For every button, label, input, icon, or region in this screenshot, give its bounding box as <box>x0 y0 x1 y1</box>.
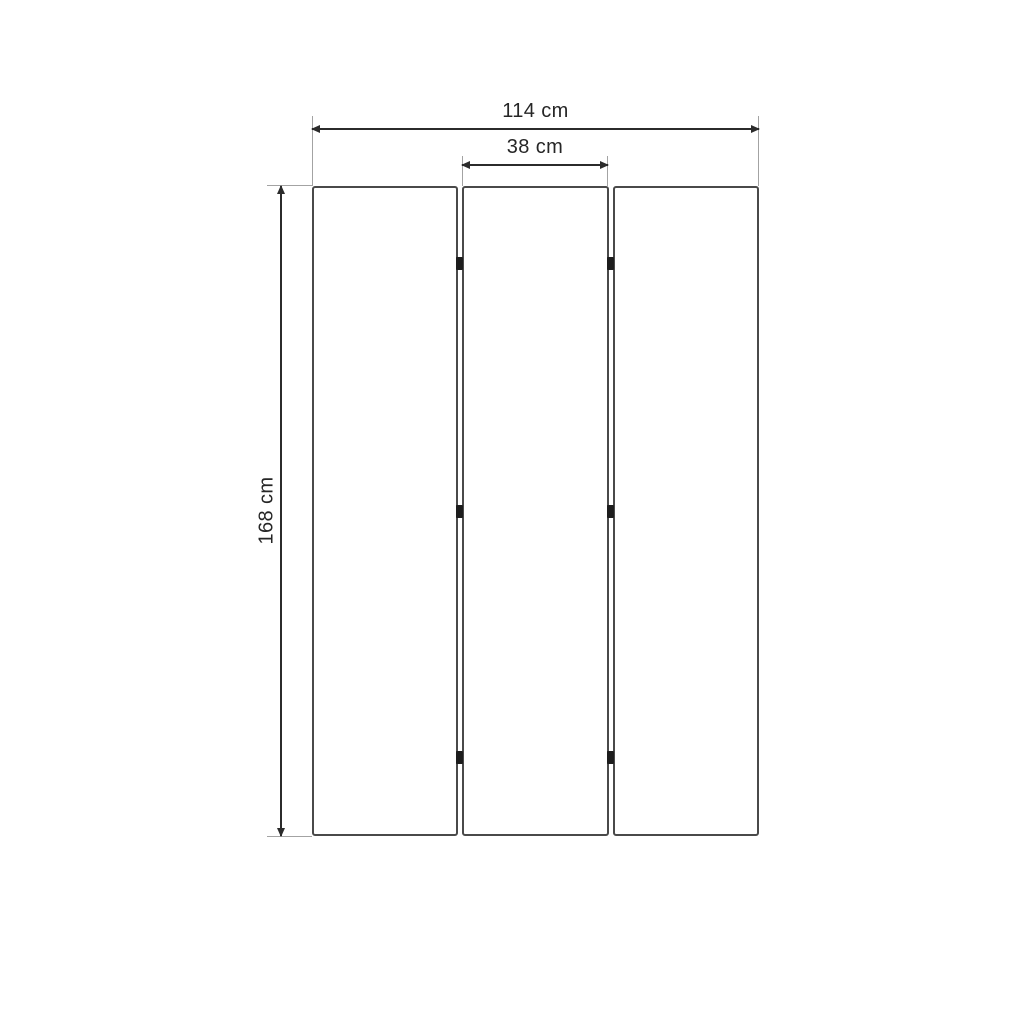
extension-line-height-top <box>267 185 312 186</box>
hinge-left-gap-middle <box>456 505 463 518</box>
hinge-left-gap-top <box>456 257 463 270</box>
extension-line-height-bottom <box>267 836 312 837</box>
panel-group <box>312 186 759 836</box>
panel-middle <box>462 186 608 836</box>
dimension-diagram: 114 cm 38 cm 168 cm <box>0 0 1024 1024</box>
panel-left <box>312 186 458 836</box>
height-dimension-label: 168 cm <box>256 451 279 571</box>
panel-width-dimension-line <box>462 164 608 166</box>
hinge-left-gap-bottom <box>456 751 463 764</box>
total-width-dimension-line <box>312 128 759 130</box>
panel-width-dimension-label: 38 cm <box>462 136 608 159</box>
total-width-dimension-label: 114 cm <box>312 100 759 123</box>
hinge-right-gap-middle <box>607 505 614 518</box>
hinge-right-gap-bottom <box>607 751 614 764</box>
height-dimension-line <box>280 186 282 836</box>
hinge-right-gap-top <box>607 257 614 270</box>
panel-right <box>613 186 759 836</box>
